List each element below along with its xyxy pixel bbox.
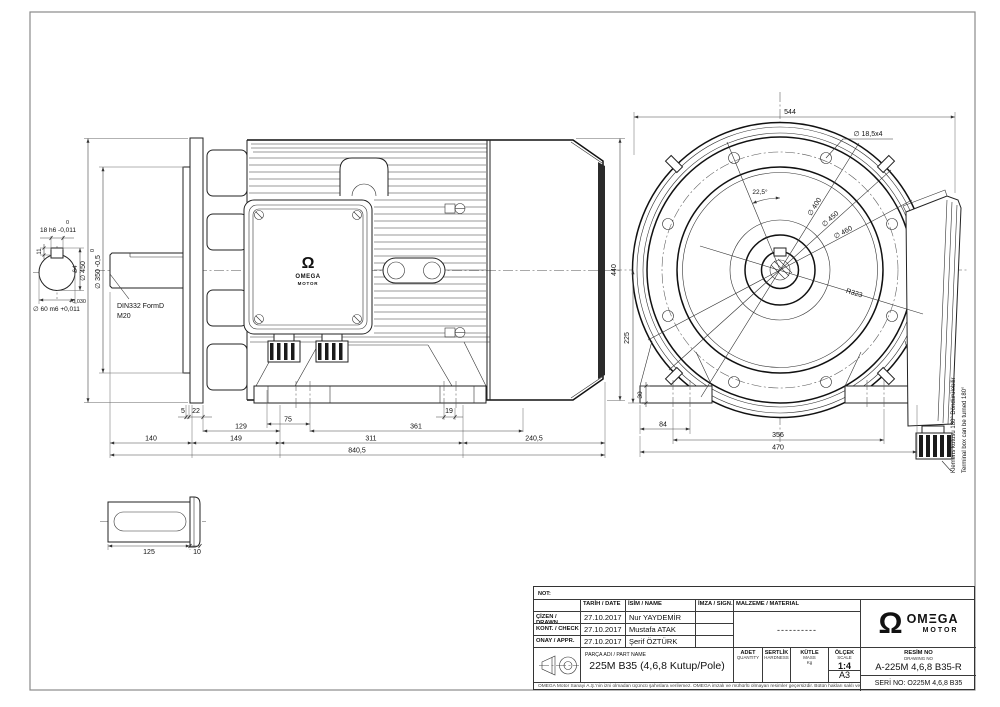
row-label-approve: ONAY / APPR.: [534, 636, 580, 644]
quantity-cell: ADETQUANTITY: [734, 648, 763, 683]
first-angle-projection-icon: [535, 649, 580, 682]
part-name-cell: PARÇA ADI / PART NAME 225M B35 (4,6,8 Ku…: [581, 648, 734, 683]
row-label-check: KONT. / CHECK: [534, 624, 580, 632]
dim-361: 361: [410, 424, 422, 431]
paper-size: A3: [829, 671, 860, 681]
dim-11: 11: [37, 248, 43, 255]
approve-name: Şerif ÖZTÜRK: [626, 636, 696, 648]
approve-date: 27.10.2017: [581, 636, 626, 648]
dim-356: 356: [772, 432, 784, 439]
label-din332: DIN332 FormD: [117, 303, 164, 310]
scale-cell: ÖLÇEKSCALE 1:4 A3: [829, 648, 861, 683]
note-terminal-box-tr: Klemens kutusu 180° Döndürülebilir: [951, 378, 957, 473]
box-logo-sub: MOTOR: [298, 281, 319, 286]
dim-149: 149: [230, 436, 242, 443]
part-name-value: 225M B35 (4,6,8 Kutup/Pole): [581, 660, 733, 672]
dim-125: 125: [143, 549, 155, 556]
bearing-capsule: [383, 258, 445, 283]
logo-sub: MOTOR: [907, 627, 959, 634]
dim-shaft-tol-upper: +0,030: [69, 299, 86, 305]
front-view: [612, 92, 968, 459]
label-m20: M20: [117, 313, 131, 320]
check-date: 27.10.2017: [581, 624, 626, 636]
dim-5: 5: [181, 408, 185, 415]
flange-disc: [190, 138, 203, 403]
dim-140: 140: [145, 436, 157, 443]
cable-glands-side: [268, 334, 348, 362]
keyway-detail-view: [100, 497, 206, 547]
key-end-piece: [190, 497, 200, 547]
dim-19: 19: [445, 408, 453, 415]
dim-64: 64: [72, 265, 79, 273]
dim-22: 22: [192, 408, 200, 415]
logo-name: OMΞGA: [907, 613, 959, 626]
fan-cover-plate: [598, 162, 605, 379]
serial-no: SERİ NO: O225M 4,6,8 B35: [861, 676, 976, 691]
logo-cell: Ω OMΞGA MOTOR: [861, 600, 976, 648]
dim-spigot: ∅ 350 -0,5: [95, 255, 102, 289]
dim-75: 75: [284, 417, 292, 424]
material-value: ----------: [734, 612, 861, 648]
dim-10: 10: [193, 549, 201, 556]
check-signature: [696, 624, 734, 636]
dim-holes: ∅ 18,5x4: [853, 131, 882, 138]
dim-key-upper: 0: [66, 220, 69, 226]
dim-spigot-upper: 0: [90, 249, 96, 252]
lifting-lug: [340, 158, 388, 196]
drawing-no-cell: RESİM NO DRAWING NO A-225M 4,6,8 B35-R: [861, 648, 976, 676]
drawn-name: Nur YAYDEMİR: [626, 612, 696, 624]
drawn-date: 27.10.2017: [581, 612, 626, 624]
dim-84: 84: [659, 422, 667, 429]
projection-symbol-cell: [534, 648, 581, 683]
drawn-signature: [696, 612, 734, 624]
title-block: NOT: TARİH / DATE İSİM / NAME İMZA / SIG…: [533, 586, 975, 690]
note-label: NOT:: [536, 589, 551, 597]
dim-240-5: 240,5: [525, 436, 543, 443]
col-header-material: MALZEME / MATERIAL: [734, 600, 799, 607]
mass-cell: KÜTLEMASSKg: [791, 648, 829, 683]
dim-470: 470: [772, 445, 784, 452]
dim-flange-od: ∅ 450: [80, 261, 87, 281]
dim-angle: 22,5°: [752, 188, 768, 196]
shaft-key: [51, 248, 63, 258]
dim-front-30: 30: [637, 391, 644, 399]
dim-544: 544: [784, 109, 796, 116]
flange-spigot: [183, 167, 190, 373]
dim-129: 129: [235, 424, 247, 431]
note-terminal-box-en: Terminal box can be turned 180°: [962, 386, 968, 473]
shaft: [110, 253, 187, 288]
col-header-name: İSİM / NAME: [626, 600, 662, 607]
drawing-sheet: Ω OMEGA MOTOR: [0, 0, 1000, 707]
body-top-lines: [251, 144, 487, 152]
row-label-drawn: ÇİZEN / DRAWN: [534, 612, 580, 624]
hardness-cell: SERTLİKHARDNESS: [763, 648, 791, 683]
box-logo-name: OMEGA: [295, 274, 320, 280]
col-header-date: TARİH / DATE: [581, 600, 620, 607]
omega-logo-icon: Ω: [879, 609, 903, 639]
part-name-label: PARÇA ADI / PART NAME: [583, 650, 646, 658]
terminal-box-side: Ω OMEGA MOTOR: [244, 200, 372, 334]
dim-shaft-dia: ∅ 60 m6 +0,011: [33, 306, 80, 313]
box-logo-omega-icon: Ω: [302, 255, 315, 272]
endshield-ribs: [207, 150, 247, 390]
dim-440: 440: [611, 264, 618, 276]
front-keyway: [774, 248, 786, 256]
dim-front-225: 225: [624, 332, 631, 344]
col-header-sign: İMZA / SIGN.: [696, 600, 733, 607]
dim-311: 311: [365, 436, 376, 443]
dim-840-5: 840,5: [348, 448, 366, 455]
side-view: Ω OMEGA MOTOR: [95, 138, 622, 409]
approve-signature: [696, 636, 734, 648]
disclaimer-text: OMEGA Motor Sanayi A.Ş.'nin izni olmadan…: [534, 683, 861, 691]
fan-cover-chamfers: [571, 142, 602, 398]
drawing-no-value: A-225M 4,6,8 B35-R: [861, 661, 976, 673]
check-name: Mustafa ATAK: [626, 624, 696, 636]
drawing-no-label: RESİM NO: [861, 648, 976, 656]
dim-key: 18 h6 -0,011: [40, 227, 76, 234]
